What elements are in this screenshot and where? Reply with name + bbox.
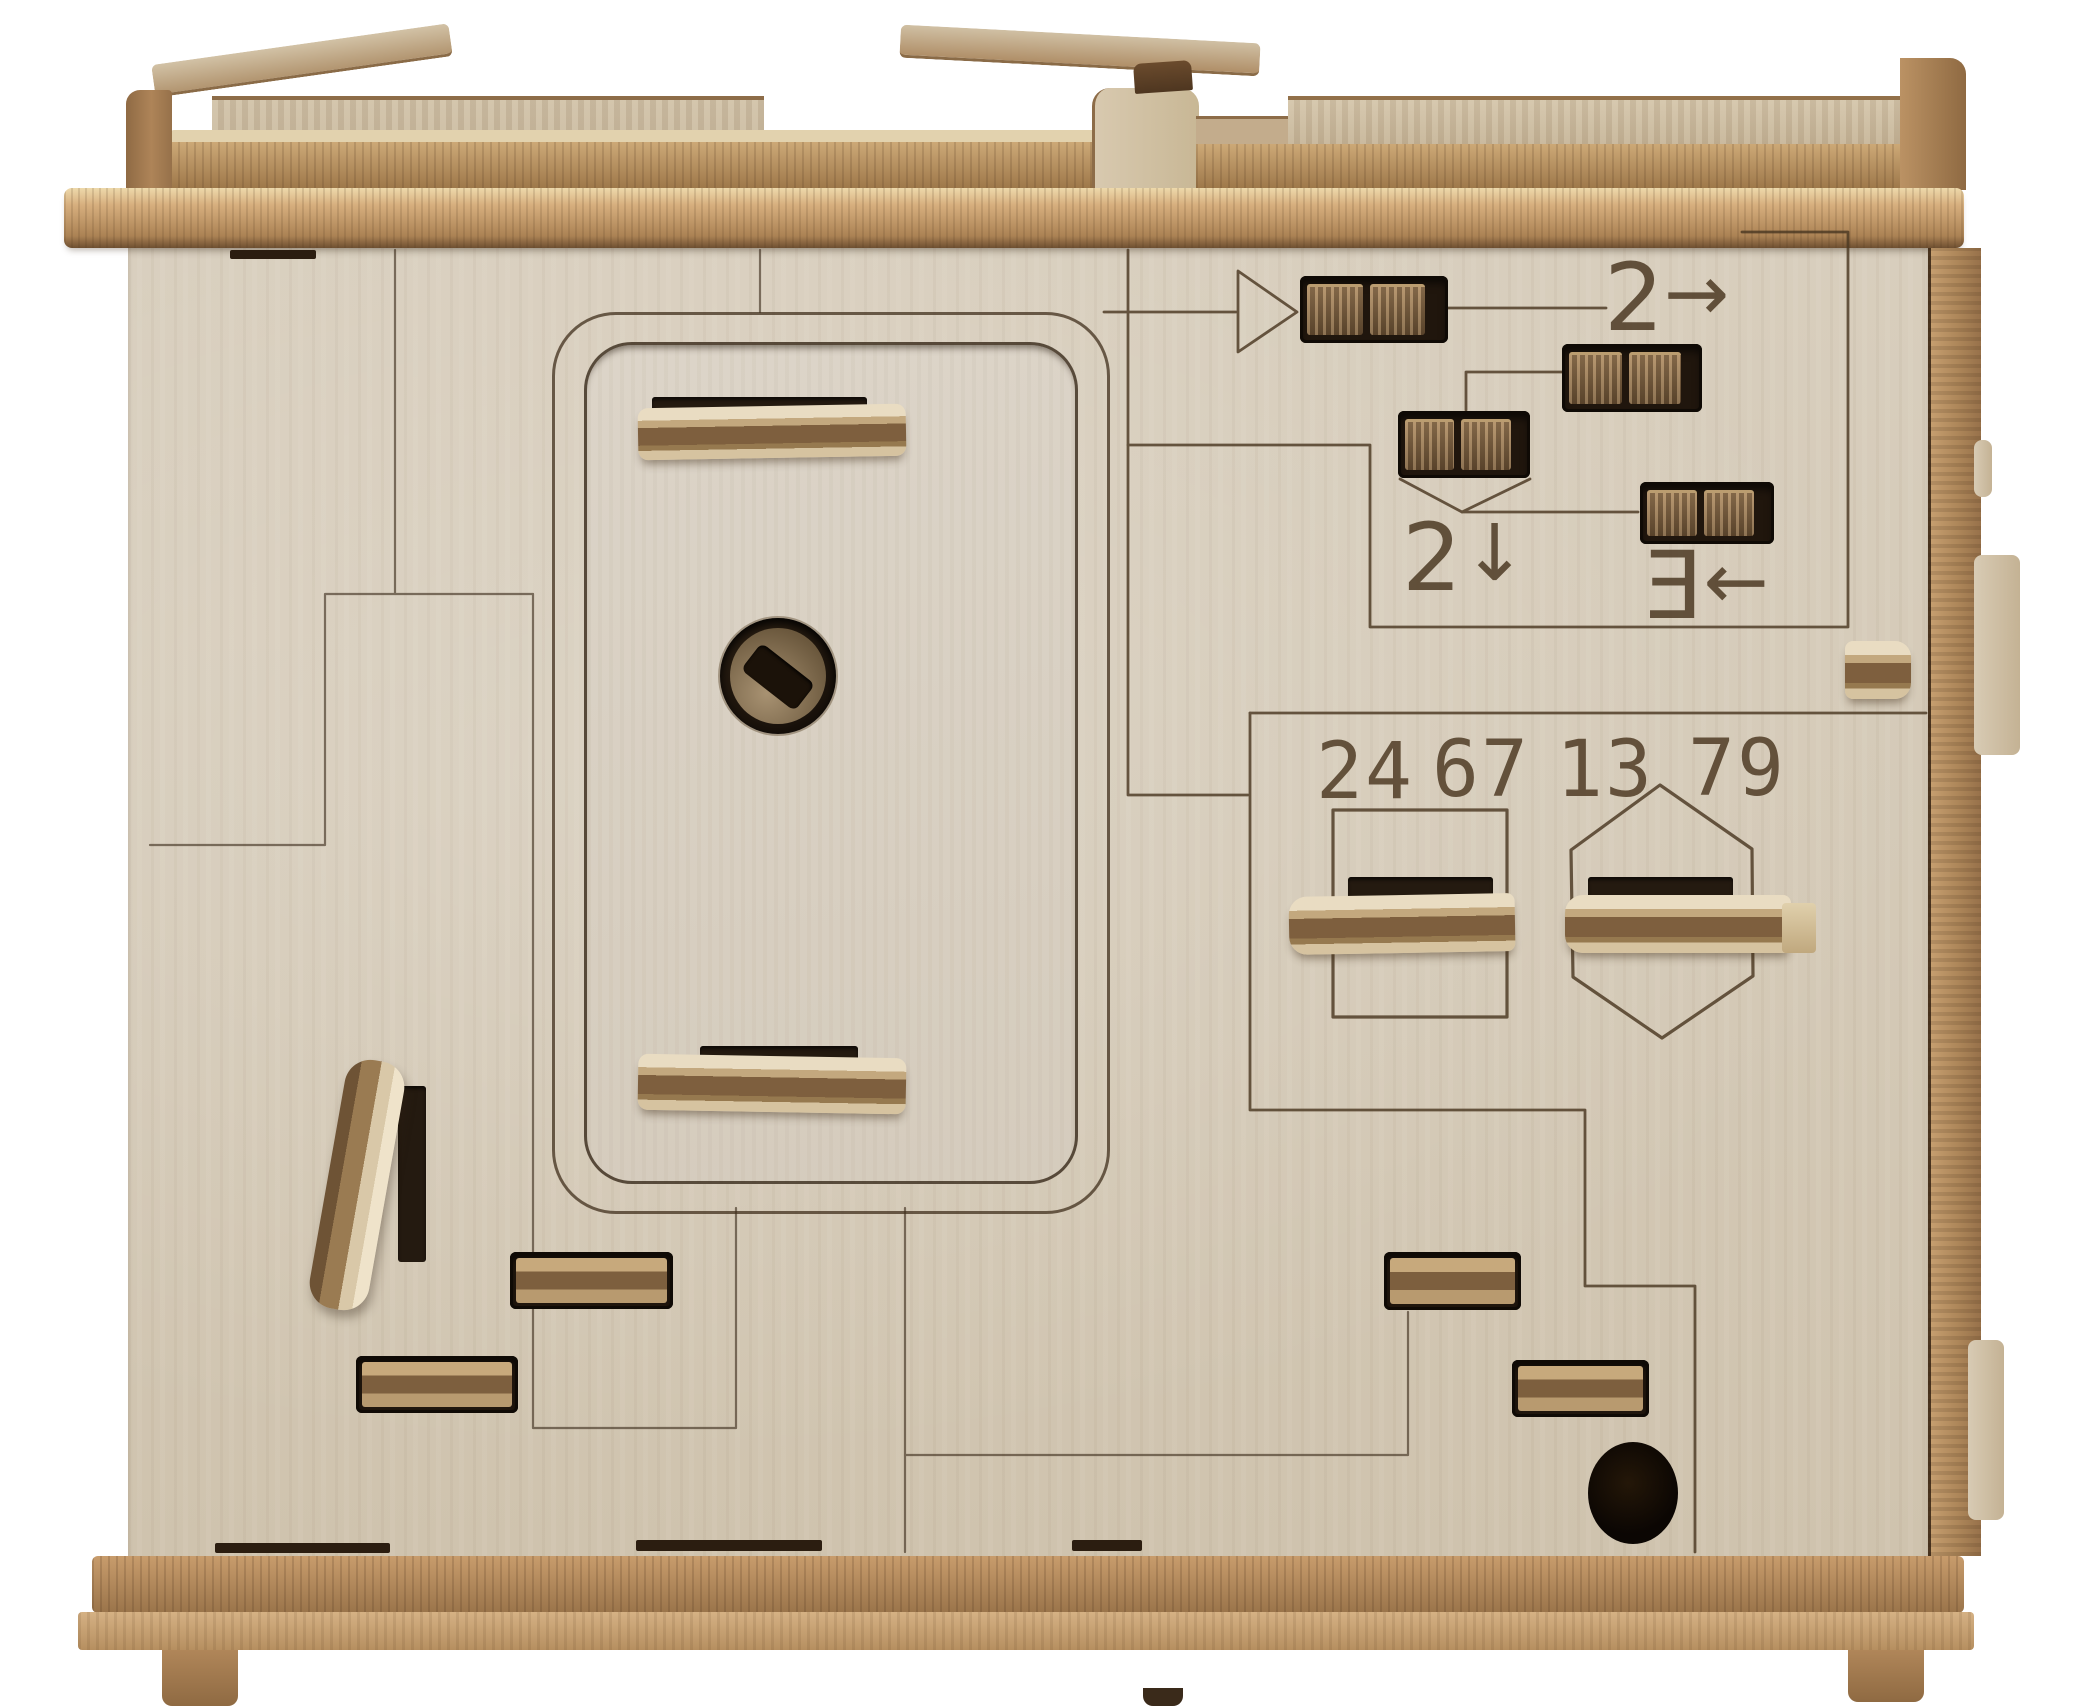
roof-back-board-right <box>899 25 1260 77</box>
screw-cylinder[interactable] <box>730 628 826 724</box>
code-digits-13: 13 <box>1556 731 1654 809</box>
slider-f[interactable] <box>1518 1366 1643 1411</box>
label-two-down: 2↓ <box>1402 512 1527 606</box>
slider-knob <box>1307 284 1363 335</box>
code-digits-24: 24 <box>1316 733 1414 811</box>
slider-knob <box>1704 490 1754 536</box>
screwdriver-slot <box>741 643 816 712</box>
label-three-left: Ǝ← <box>1644 540 1769 634</box>
roof-back-board-left <box>151 23 453 97</box>
slider-slot-d <box>1640 482 1774 544</box>
slider-a[interactable] <box>1307 284 1425 335</box>
panel-tab-slit <box>1072 1540 1142 1551</box>
panel-tab-slit <box>215 1543 390 1553</box>
roof-deck-right <box>1196 144 1906 189</box>
base-rail-upper <box>92 1556 1964 1613</box>
foot-right <box>1848 1650 1924 1702</box>
roof-left-bracket <box>126 90 172 190</box>
slider-d[interactable] <box>1647 490 1754 536</box>
roof-knob[interactable] <box>1133 60 1193 94</box>
roof-deck-front <box>170 142 1196 189</box>
slider-b[interactable] <box>1569 352 1681 404</box>
lid-cap-rail[interactable] <box>64 188 1964 248</box>
hexagon-lever-bar[interactable] <box>1565 895 1791 953</box>
slider-h[interactable] <box>362 1362 512 1407</box>
door-bottom-latch-bar[interactable] <box>638 1054 907 1115</box>
puzzle-box-photo: 24 67 13 79 2→ 2↓ Ǝ← <box>0 0 2100 1706</box>
label-two-right: 2→ <box>1604 252 1729 346</box>
side-slider-end[interactable] <box>1845 641 1911 699</box>
foot-middle <box>1143 1688 1183 1706</box>
door-screw-hole <box>720 618 836 734</box>
stick-slot <box>398 1086 426 1262</box>
foot-left <box>162 1650 238 1706</box>
slider-slot-e <box>1384 1252 1521 1310</box>
slider-slot-c <box>1398 411 1530 478</box>
slider-slot-g <box>510 1252 673 1309</box>
hexagon-lever-endcap[interactable] <box>1782 903 1816 953</box>
slider-slot-f <box>1512 1360 1649 1417</box>
square-lever-bar[interactable] <box>1289 893 1516 955</box>
code-digits-67: 67 <box>1432 731 1530 809</box>
slider-slot-a <box>1300 276 1448 343</box>
door-top-latch-bar[interactable] <box>638 404 907 461</box>
slider-slot-h <box>356 1356 518 1413</box>
panel-tab-slit <box>230 250 316 259</box>
slider-knob <box>1647 490 1697 536</box>
side-tab-small <box>1974 440 1992 497</box>
roof-back-plate-right <box>1288 96 1904 148</box>
side-tab-lower <box>1968 1340 2004 1520</box>
slider-c[interactable] <box>1405 419 1511 470</box>
base-rail-lower <box>78 1612 1974 1650</box>
slider-knob <box>1370 284 1426 335</box>
roof-round-plate <box>1092 88 1199 189</box>
slider-knob <box>1569 352 1622 404</box>
slider-slot-b <box>1562 344 1702 412</box>
roof-right-bracket <box>1900 58 1966 190</box>
slider-knob <box>1461 419 1510 470</box>
code-digits-79: 79 <box>1688 730 1786 808</box>
slider-g[interactable] <box>516 1258 667 1303</box>
slider-knob <box>1405 419 1454 470</box>
side-tab-large <box>1974 555 2020 755</box>
panel-tab-slit <box>636 1540 822 1551</box>
round-exit-hole <box>1588 1442 1678 1544</box>
slider-e[interactable] <box>1390 1258 1515 1304</box>
slider-knob <box>1629 352 1682 404</box>
